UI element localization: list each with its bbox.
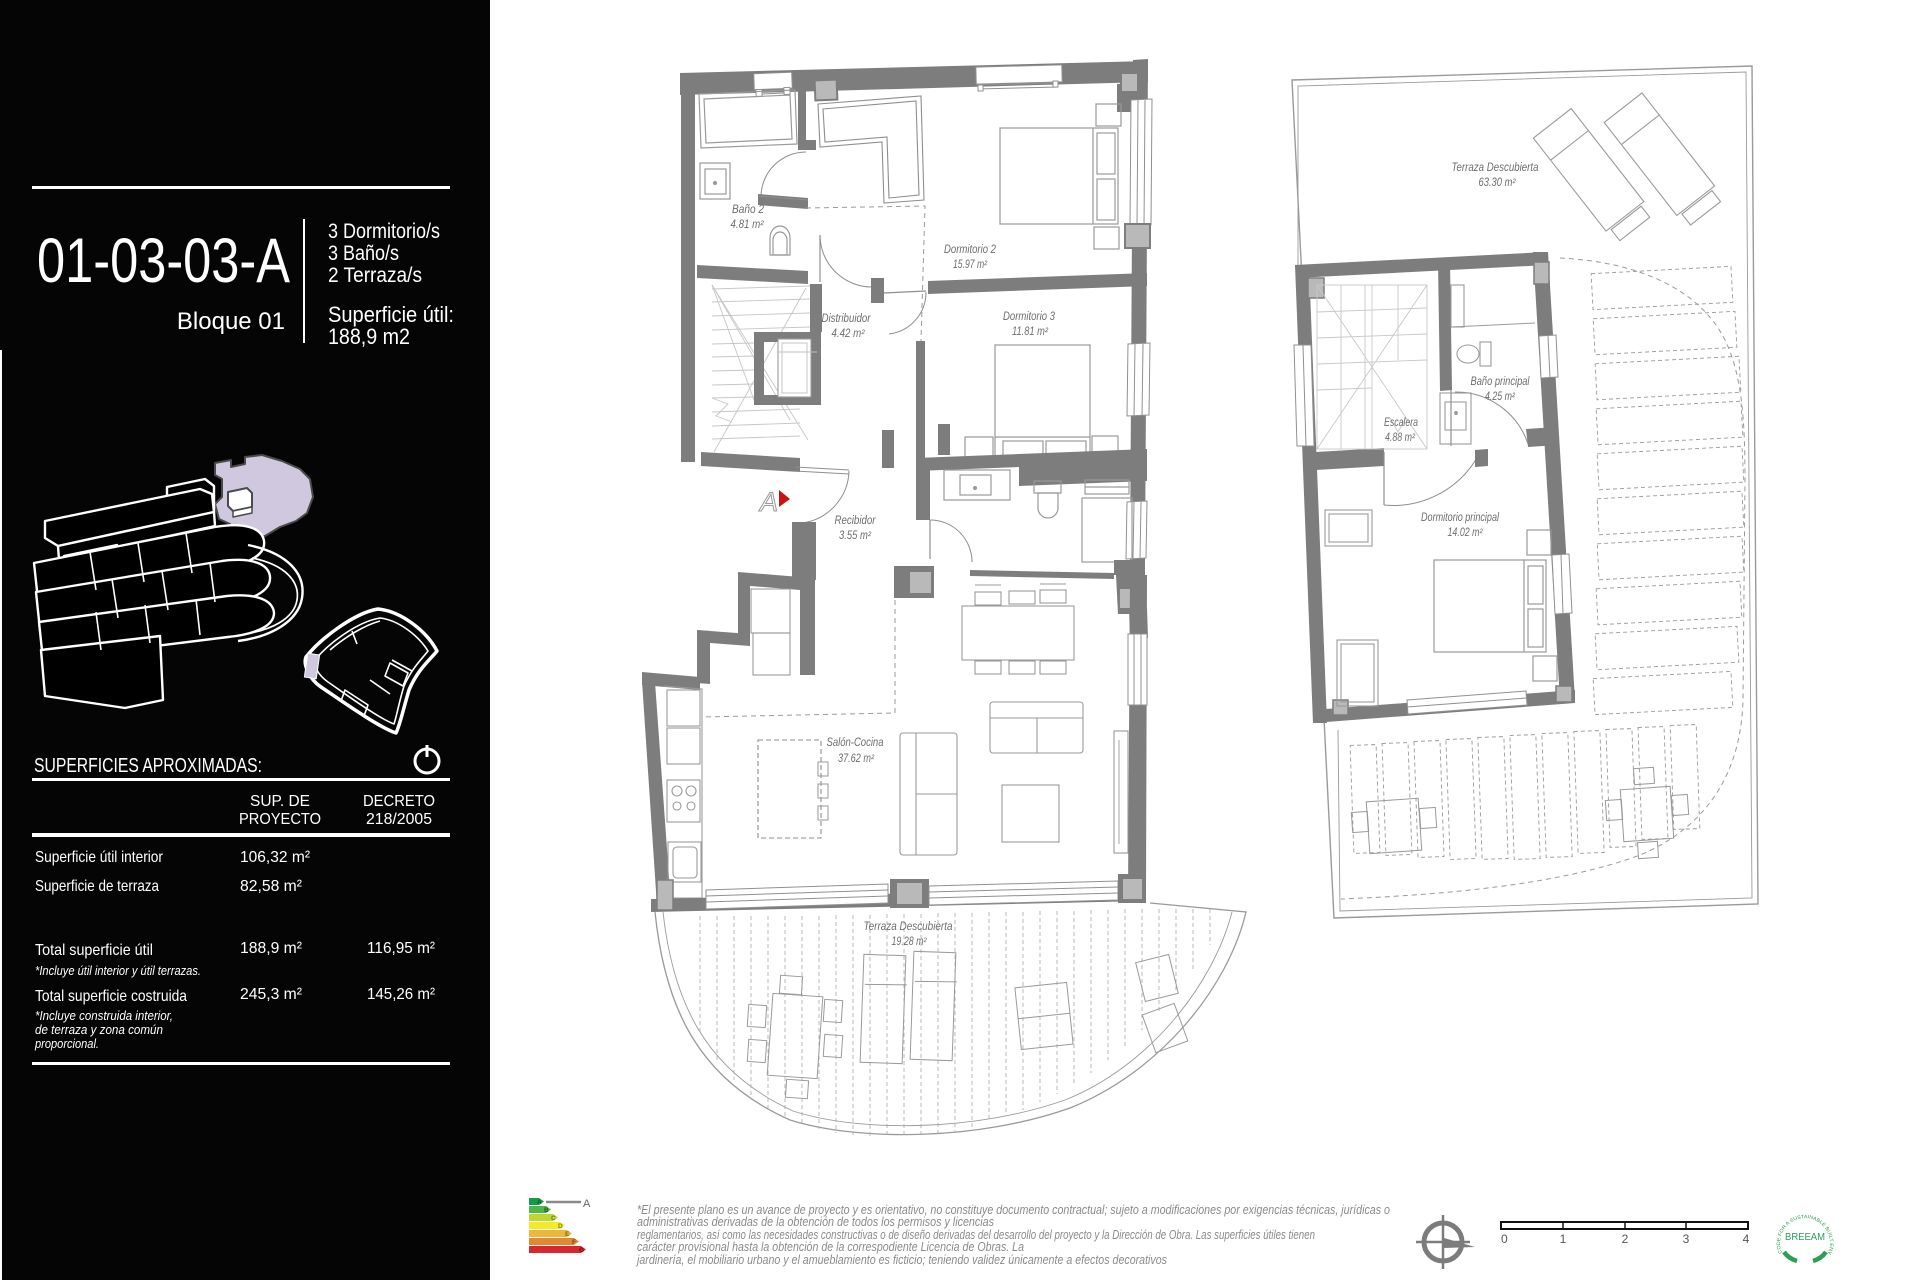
svg-text:A: A xyxy=(583,1198,591,1210)
svg-text:2: 2 xyxy=(1622,1232,1629,1246)
svg-text:D: D xyxy=(558,1223,563,1230)
svg-text:188,9 m²: 188,9 m² xyxy=(240,940,303,957)
svg-text:Superficie de terraza: Superficie de terraza xyxy=(35,878,159,895)
svg-text:Terraza Descubierta: Terraza Descubierta xyxy=(1452,162,1539,174)
svg-text:11.81 m²: 11.81 m² xyxy=(1012,326,1049,338)
svg-text:Distribuidor: Distribuidor xyxy=(822,313,872,325)
svg-text:3 Baño/s: 3 Baño/s xyxy=(328,242,399,265)
svg-text:*Incluye construida interior,: *Incluye construida interior, xyxy=(35,1008,173,1023)
svg-text:*Incluye útil interior y útil: *Incluye útil interior y útil terrazas. xyxy=(35,963,201,978)
svg-text:0: 0 xyxy=(1501,1232,1508,1246)
svg-text:4.88 m²: 4.88 m² xyxy=(1385,432,1416,444)
svg-text:proporcional.: proporcional. xyxy=(34,1036,99,1051)
svg-text:A: A xyxy=(758,487,778,517)
svg-text:4: 4 xyxy=(1743,1232,1750,1246)
svg-text:2 Terraza/s: 2 Terraza/s xyxy=(328,264,422,287)
svg-text:Baño principal: Baño principal xyxy=(1471,376,1530,388)
svg-text:4.25 m²: 4.25 m² xyxy=(1485,391,1516,403)
svg-text:Bloque 01: Bloque 01 xyxy=(177,308,285,335)
svg-text:Salón-Cocina: Salón-Cocina xyxy=(827,737,884,749)
svg-text:82,58 m²: 82,58 m² xyxy=(240,878,303,895)
svg-text:de terraza y zona común: de terraza y zona común xyxy=(35,1022,163,1037)
svg-text:Dormitorio 3: Dormitorio 3 xyxy=(1003,311,1055,323)
svg-text:C: C xyxy=(551,1215,556,1222)
svg-text:1: 1 xyxy=(1560,1232,1567,1246)
svg-text:Recibidor: Recibidor xyxy=(835,515,877,527)
svg-text:218/2005: 218/2005 xyxy=(366,811,432,828)
svg-text:01-03-03-A: 01-03-03-A xyxy=(37,226,290,296)
svg-text:Baño 2: Baño 2 xyxy=(732,204,765,216)
svg-text:245,3 m²: 245,3 m² xyxy=(240,986,303,1003)
svg-text:Terraza Descubierta: Terraza Descubierta xyxy=(864,921,953,933)
svg-text:F: F xyxy=(572,1239,576,1246)
svg-text:3.55 m²: 3.55 m² xyxy=(839,530,872,542)
svg-text:G: G xyxy=(579,1247,584,1254)
svg-text:145,26 m²: 145,26 m² xyxy=(367,986,436,1003)
svg-text:3: 3 xyxy=(1683,1232,1690,1246)
svg-text:116,95 m²: 116,95 m² xyxy=(367,940,436,957)
svg-text:Superficie útil interior: Superficie útil interior xyxy=(35,849,164,866)
svg-text:DECRETO: DECRETO xyxy=(363,793,435,810)
svg-text:19.28 m²: 19.28 m² xyxy=(892,936,928,948)
svg-text:4.81 m²: 4.81 m² xyxy=(731,219,765,231)
svg-text:63.30 m²: 63.30 m² xyxy=(1479,177,1517,189)
svg-text:SUP. DE: SUP. DE xyxy=(250,793,310,810)
svg-text:SUPERFICIES APROXIMADAS:: SUPERFICIES APROXIMADAS: xyxy=(34,755,262,777)
svg-text:Total superficie costruida: Total superficie costruida xyxy=(35,988,187,1005)
svg-text:188,9 m2: 188,9 m2 xyxy=(328,324,410,349)
svg-text:E: E xyxy=(565,1231,570,1238)
svg-text:PROYECTO: PROYECTO xyxy=(239,811,321,828)
svg-text:Total superficie útil: Total superficie útil xyxy=(35,942,153,959)
svg-text:15.97 m²: 15.97 m² xyxy=(953,259,988,271)
svg-text:3 Dormitorio/s: 3 Dormitorio/s xyxy=(328,220,440,243)
svg-text:14.02 m²: 14.02 m² xyxy=(1448,527,1484,539)
svg-text:B: B xyxy=(544,1207,549,1214)
svg-text:administrativas derivadas de l: administrativas derivadas de la obtenció… xyxy=(637,1215,994,1229)
svg-text:37.62 m²: 37.62 m² xyxy=(838,753,875,765)
svg-text:106,32 m²: 106,32 m² xyxy=(240,849,311,866)
svg-text:BREEAM: BREEAM xyxy=(1785,1231,1825,1243)
svg-text:4.42 m²: 4.42 m² xyxy=(832,328,866,340)
svg-text:Dormitorio principal: Dormitorio principal xyxy=(1421,512,1499,524)
svg-text:carácter provisional hasta la: carácter provisional hasta la obtención … xyxy=(637,1240,1024,1254)
svg-text:Dormitorio 2: Dormitorio 2 xyxy=(944,244,996,256)
svg-text:jardinería, el mobiliario urba: jardinería, el mobiliario urbano y el am… xyxy=(635,1253,1167,1267)
svg-text:A: A xyxy=(537,1199,542,1206)
svg-text:Escalera: Escalera xyxy=(1384,417,1418,429)
